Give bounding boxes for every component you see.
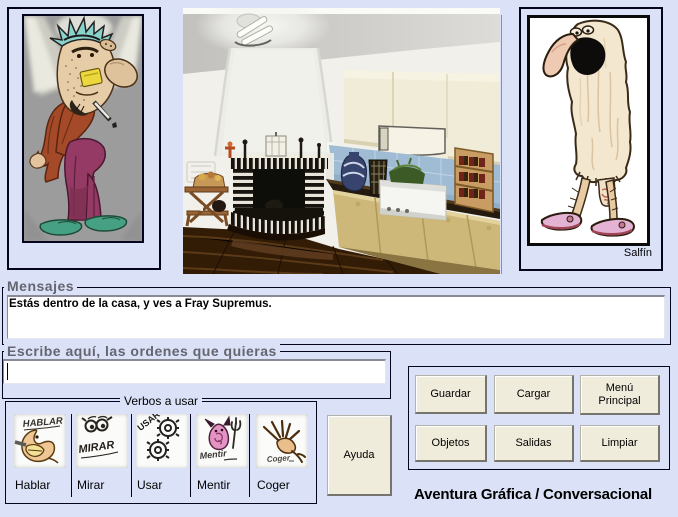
svg-text:USAR: USAR [136, 414, 162, 433]
svg-text:Mentir: Mentir [199, 448, 227, 461]
svg-text:Coger: Coger [267, 453, 292, 464]
